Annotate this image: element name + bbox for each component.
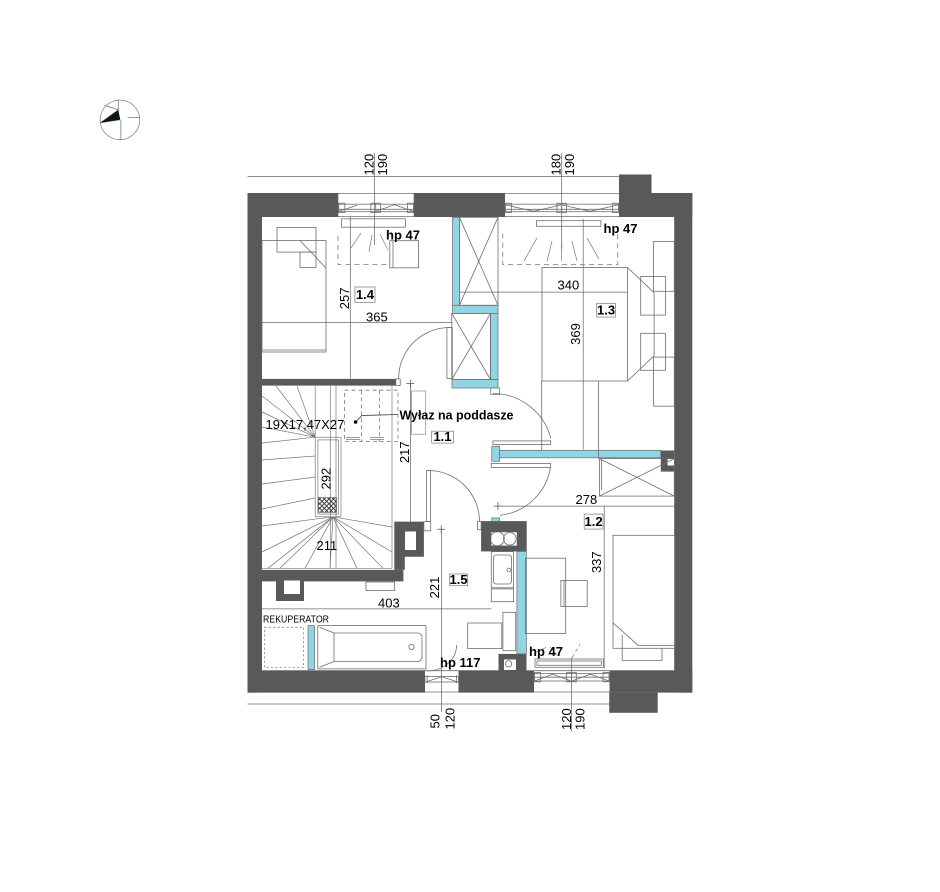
svg-text:1.4: 1.4 bbox=[356, 287, 375, 302]
svg-text:hp 117: hp 117 bbox=[440, 655, 480, 670]
svg-text:50: 50 bbox=[428, 714, 443, 728]
svg-text:190: 190 bbox=[375, 154, 390, 176]
svg-text:hp 47: hp 47 bbox=[529, 644, 563, 659]
svg-text:337: 337 bbox=[589, 551, 604, 573]
svg-text:1.1: 1.1 bbox=[433, 429, 451, 444]
svg-text:190: 190 bbox=[562, 154, 577, 176]
svg-text:340: 340 bbox=[558, 278, 580, 293]
svg-text:REKUPERATOR: REKUPERATOR bbox=[263, 614, 329, 625]
svg-text:120: 120 bbox=[443, 708, 458, 730]
svg-text:1.3: 1.3 bbox=[597, 303, 615, 318]
svg-text:hp 47: hp 47 bbox=[604, 221, 638, 236]
svg-text:19X17,47X27: 19X17,47X27 bbox=[266, 417, 345, 432]
svg-text:365: 365 bbox=[366, 310, 388, 325]
svg-text:369: 369 bbox=[568, 323, 583, 345]
svg-text:292: 292 bbox=[318, 468, 333, 490]
svg-text:Wyłaz na poddasze: Wyłaz na poddasze bbox=[400, 407, 514, 422]
svg-text:211: 211 bbox=[317, 538, 338, 553]
svg-text:1.5: 1.5 bbox=[450, 572, 468, 587]
svg-text:hp 47: hp 47 bbox=[386, 228, 420, 243]
svg-text:403: 403 bbox=[378, 596, 400, 611]
svg-text:190: 190 bbox=[573, 708, 588, 730]
svg-text:217: 217 bbox=[397, 441, 412, 463]
svg-text:221: 221 bbox=[427, 577, 442, 599]
svg-text:1.2: 1.2 bbox=[585, 514, 603, 529]
svg-text:278: 278 bbox=[576, 492, 598, 507]
svg-text:257: 257 bbox=[337, 288, 352, 310]
